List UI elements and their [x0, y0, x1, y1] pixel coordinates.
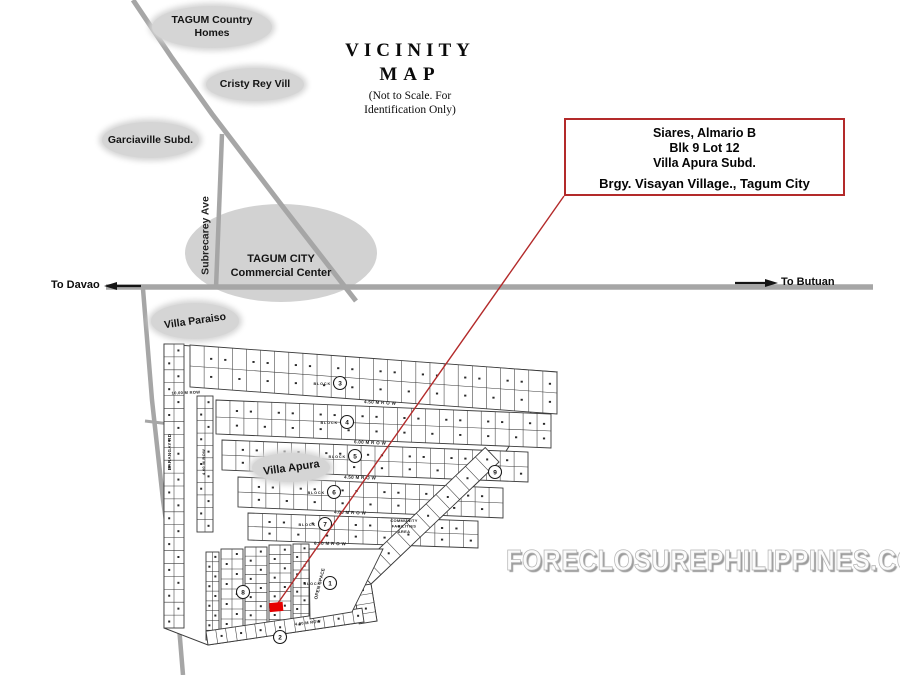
info-barangay-city: Brgy. Visayan Village., Tagum City [566, 176, 843, 191]
block-number-text: 3 [338, 380, 342, 387]
tagum-country-homes-line1: TAGUM Country [172, 14, 253, 27]
block-word-label: BLOCK [321, 421, 339, 425]
block-number-text: 9 [493, 469, 497, 476]
title-note-line-2: Identification Only) [325, 103, 495, 117]
map-title: VICINITY MAP (Not to Scale. For Identifi… [325, 40, 495, 117]
plat-road-label: 4.00 M ROW [201, 449, 206, 475]
watermark-text: FORECLOSUREPHILIPPINES.COM [506, 545, 900, 578]
cristy-rey-text: Cristy Rey Vill [220, 78, 290, 91]
label-to-butuan: To Butuan [781, 276, 835, 288]
block-word-label: BLOCK [299, 523, 317, 527]
plat-road-label: FACILITIES [392, 524, 417, 529]
block-number-text: 1 [328, 580, 332, 587]
title-note-line-1: (Not to Scale. For [325, 89, 495, 103]
block-number-text: 4 [345, 419, 349, 426]
label-villa-paraiso: Villa Paraiso [151, 303, 239, 339]
subject-lot-marker [269, 602, 283, 612]
label-subrecarey-ave: Subrecarey Ave [200, 186, 215, 286]
title-line-2: MAP [325, 64, 495, 86]
block-number-text: 6 [332, 489, 336, 496]
label-cristy-rey-vill: Cristy Rey Vill [206, 68, 304, 101]
block-word-label: BLOCK [308, 491, 326, 495]
info-owner: Siares, Almario B [566, 126, 843, 141]
commercial-center-line1: TAGUM CITY [200, 252, 362, 266]
villa-apura-text: Villa Apura [262, 457, 320, 479]
label-garciaville-subd: Garciaville Subd. [102, 122, 199, 158]
label-to-davao: To Davao [51, 279, 100, 291]
block-number-text: 5 [353, 453, 357, 460]
info-subdivision: Villa Apura Subd. [566, 156, 843, 171]
plat-road-label: BARANGAY RD [167, 433, 172, 470]
plat-road-label: AREA [398, 529, 411, 534]
block-number-text: 2 [278, 634, 282, 641]
label-tagum-city-commercial-center: TAGUM CITY Commercial Center [200, 252, 362, 280]
block-number-text: 8 [241, 589, 245, 596]
block-number-text: 7 [323, 521, 327, 528]
garciaville-text: Garciaville Subd. [108, 134, 193, 147]
tagum-country-homes-line2: Homes [194, 27, 229, 40]
plat-road-label: COMMUNITY [390, 518, 417, 523]
block-word-label: BLOCK [329, 455, 347, 459]
plat-road-label: 10.00 M ROW [172, 390, 201, 396]
info-block-lot: Blk 9 Lot 12 [566, 141, 843, 156]
label-tagum-country-homes: TAGUM Country Homes [152, 6, 272, 48]
label-villa-apura: Villa Apura [252, 453, 330, 482]
commercial-center-line2: Commercial Center [200, 266, 362, 280]
title-line-1: VICINITY [325, 40, 495, 62]
property-info-box: Siares, Almario B Blk 9 Lot 12 Villa Apu… [564, 118, 845, 196]
title-note: (Not to Scale. For Identification Only) [325, 89, 495, 117]
villa-paraiso-text: Villa Paraiso [163, 310, 226, 332]
block-word-label: BLOCK [314, 382, 332, 386]
